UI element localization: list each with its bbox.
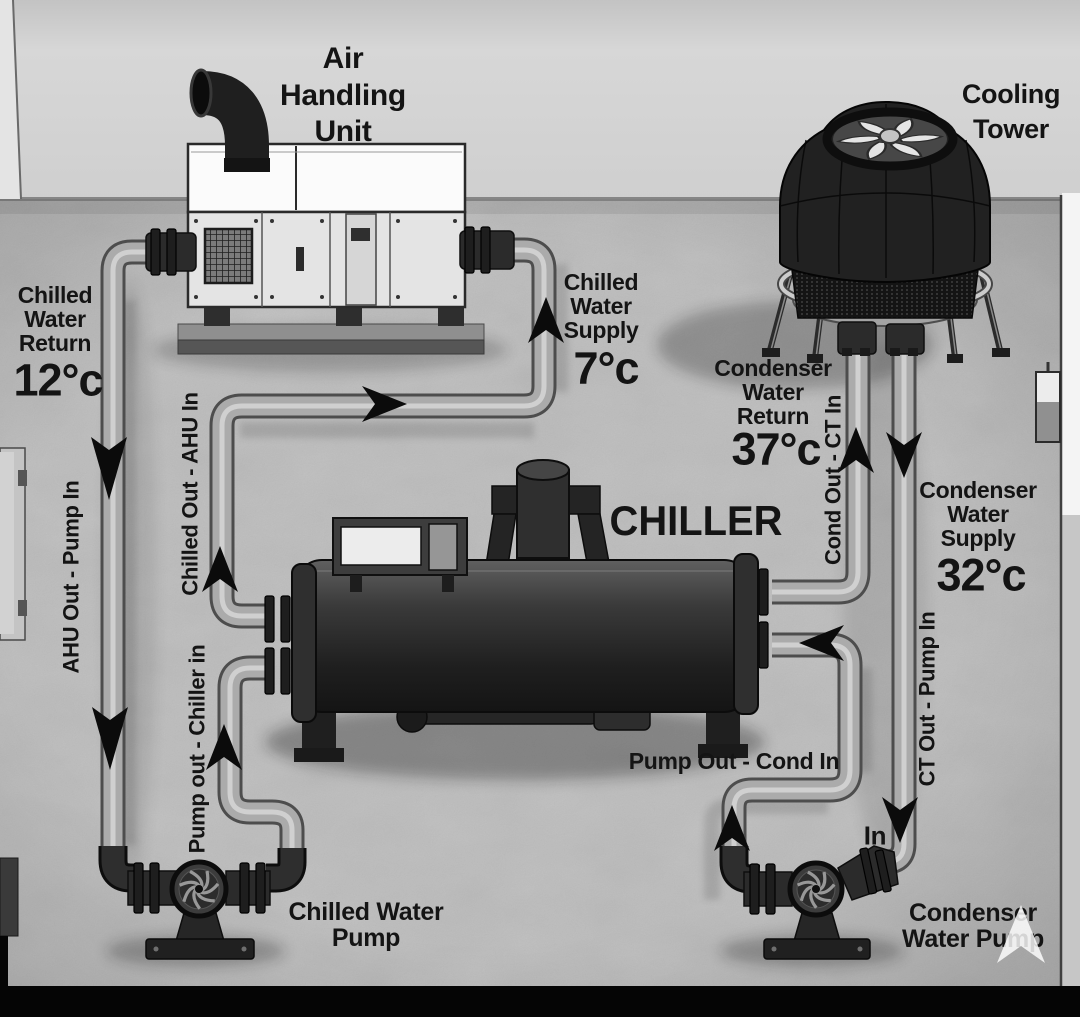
label-condenser-water-return: Condenser Water Return [707,356,839,428]
label-ahu-out-pump-in: AHU Out - Pump In [59,481,82,674]
label-cooling-tower: Cooling Tower [954,77,1069,147]
left-floor-box [0,858,18,936]
right-floor-strip [1062,515,1080,990]
temp-chilled-water-supply: 7°c [573,346,638,391]
chiller-body [296,560,750,712]
label-pump-out-chiller-in: Pump out - Chiller in [185,645,208,854]
wall-sensor [1036,362,1060,442]
label-ct-out-pump-in: CT Out - Pump In [915,612,938,787]
label-condenser-water-supply: Condenser Water Supply [912,478,1044,550]
left-edge-bar [0,936,8,988]
label-cond-out-ct-in: Cond Out - CT In [821,395,844,565]
label-pump-inlet: In [864,822,887,849]
label-chiller: CHILLER [610,499,783,543]
label-chilled-water-return: Chilled Water Return [5,283,105,355]
temp-chilled-water-return: 12°c [13,358,102,403]
right-doorway [1062,193,1080,515]
label-pump-out-cond-in: Pump Out - Cond In [629,749,840,773]
label-chilled-water-supply: Chilled Water Supply [551,270,651,342]
left-wall-panel [0,448,27,640]
bottom-letterbox-bar [0,986,1080,1017]
label-air-handling-unit: Air Handling Unit [276,41,411,151]
label-chilled-out-ahu-in: Chilled Out - AHU In [178,392,201,595]
temp-condenser-water-supply: 32°c [936,553,1025,598]
label-chilled-water-pump: Chilled Water Pump [289,899,444,952]
pump-impeller-icon [790,863,842,915]
label-condenser-water-pump: Condenser Water Pump [888,900,1058,953]
temp-condenser-water-return: 37°c [731,427,820,472]
pump-impeller-icon [172,862,226,916]
hvac-chiller-diagram: Air Handling Unit Cooling Tower Chilled … [0,0,1080,1017]
ahu-intake-grille [205,229,252,283]
chiller-display [341,527,421,565]
tower-fan-icon [827,112,953,166]
ahu-access-door [346,214,376,305]
chiller-compressor-cylinder [517,460,569,558]
